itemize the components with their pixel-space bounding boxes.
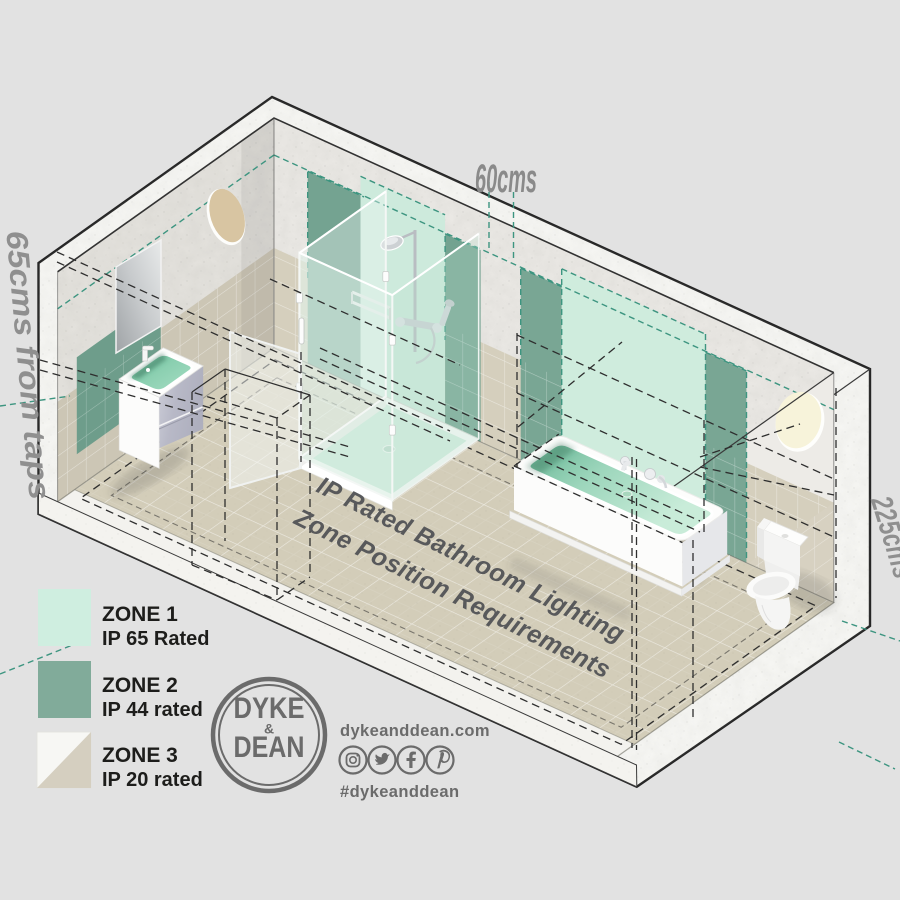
- svg-text:ZONE 3: ZONE 3: [102, 744, 178, 767]
- svg-text:IP 65 Rated: IP 65 Rated: [102, 628, 209, 650]
- svg-text:#dykeanddean: #dykeanddean: [340, 783, 459, 801]
- svg-text:ZONE 1: ZONE 1: [102, 603, 178, 626]
- svg-text:IP 44 rated: IP 44 rated: [102, 699, 203, 721]
- svg-text:dykeanddean.com: dykeanddean.com: [340, 722, 490, 740]
- svg-text:60cms: 60cms: [475, 157, 537, 201]
- svg-text:DEAN: DEAN: [234, 731, 305, 764]
- svg-text:ZONE 2: ZONE 2: [102, 674, 178, 697]
- svg-text:IP 20 rated: IP 20 rated: [102, 769, 203, 791]
